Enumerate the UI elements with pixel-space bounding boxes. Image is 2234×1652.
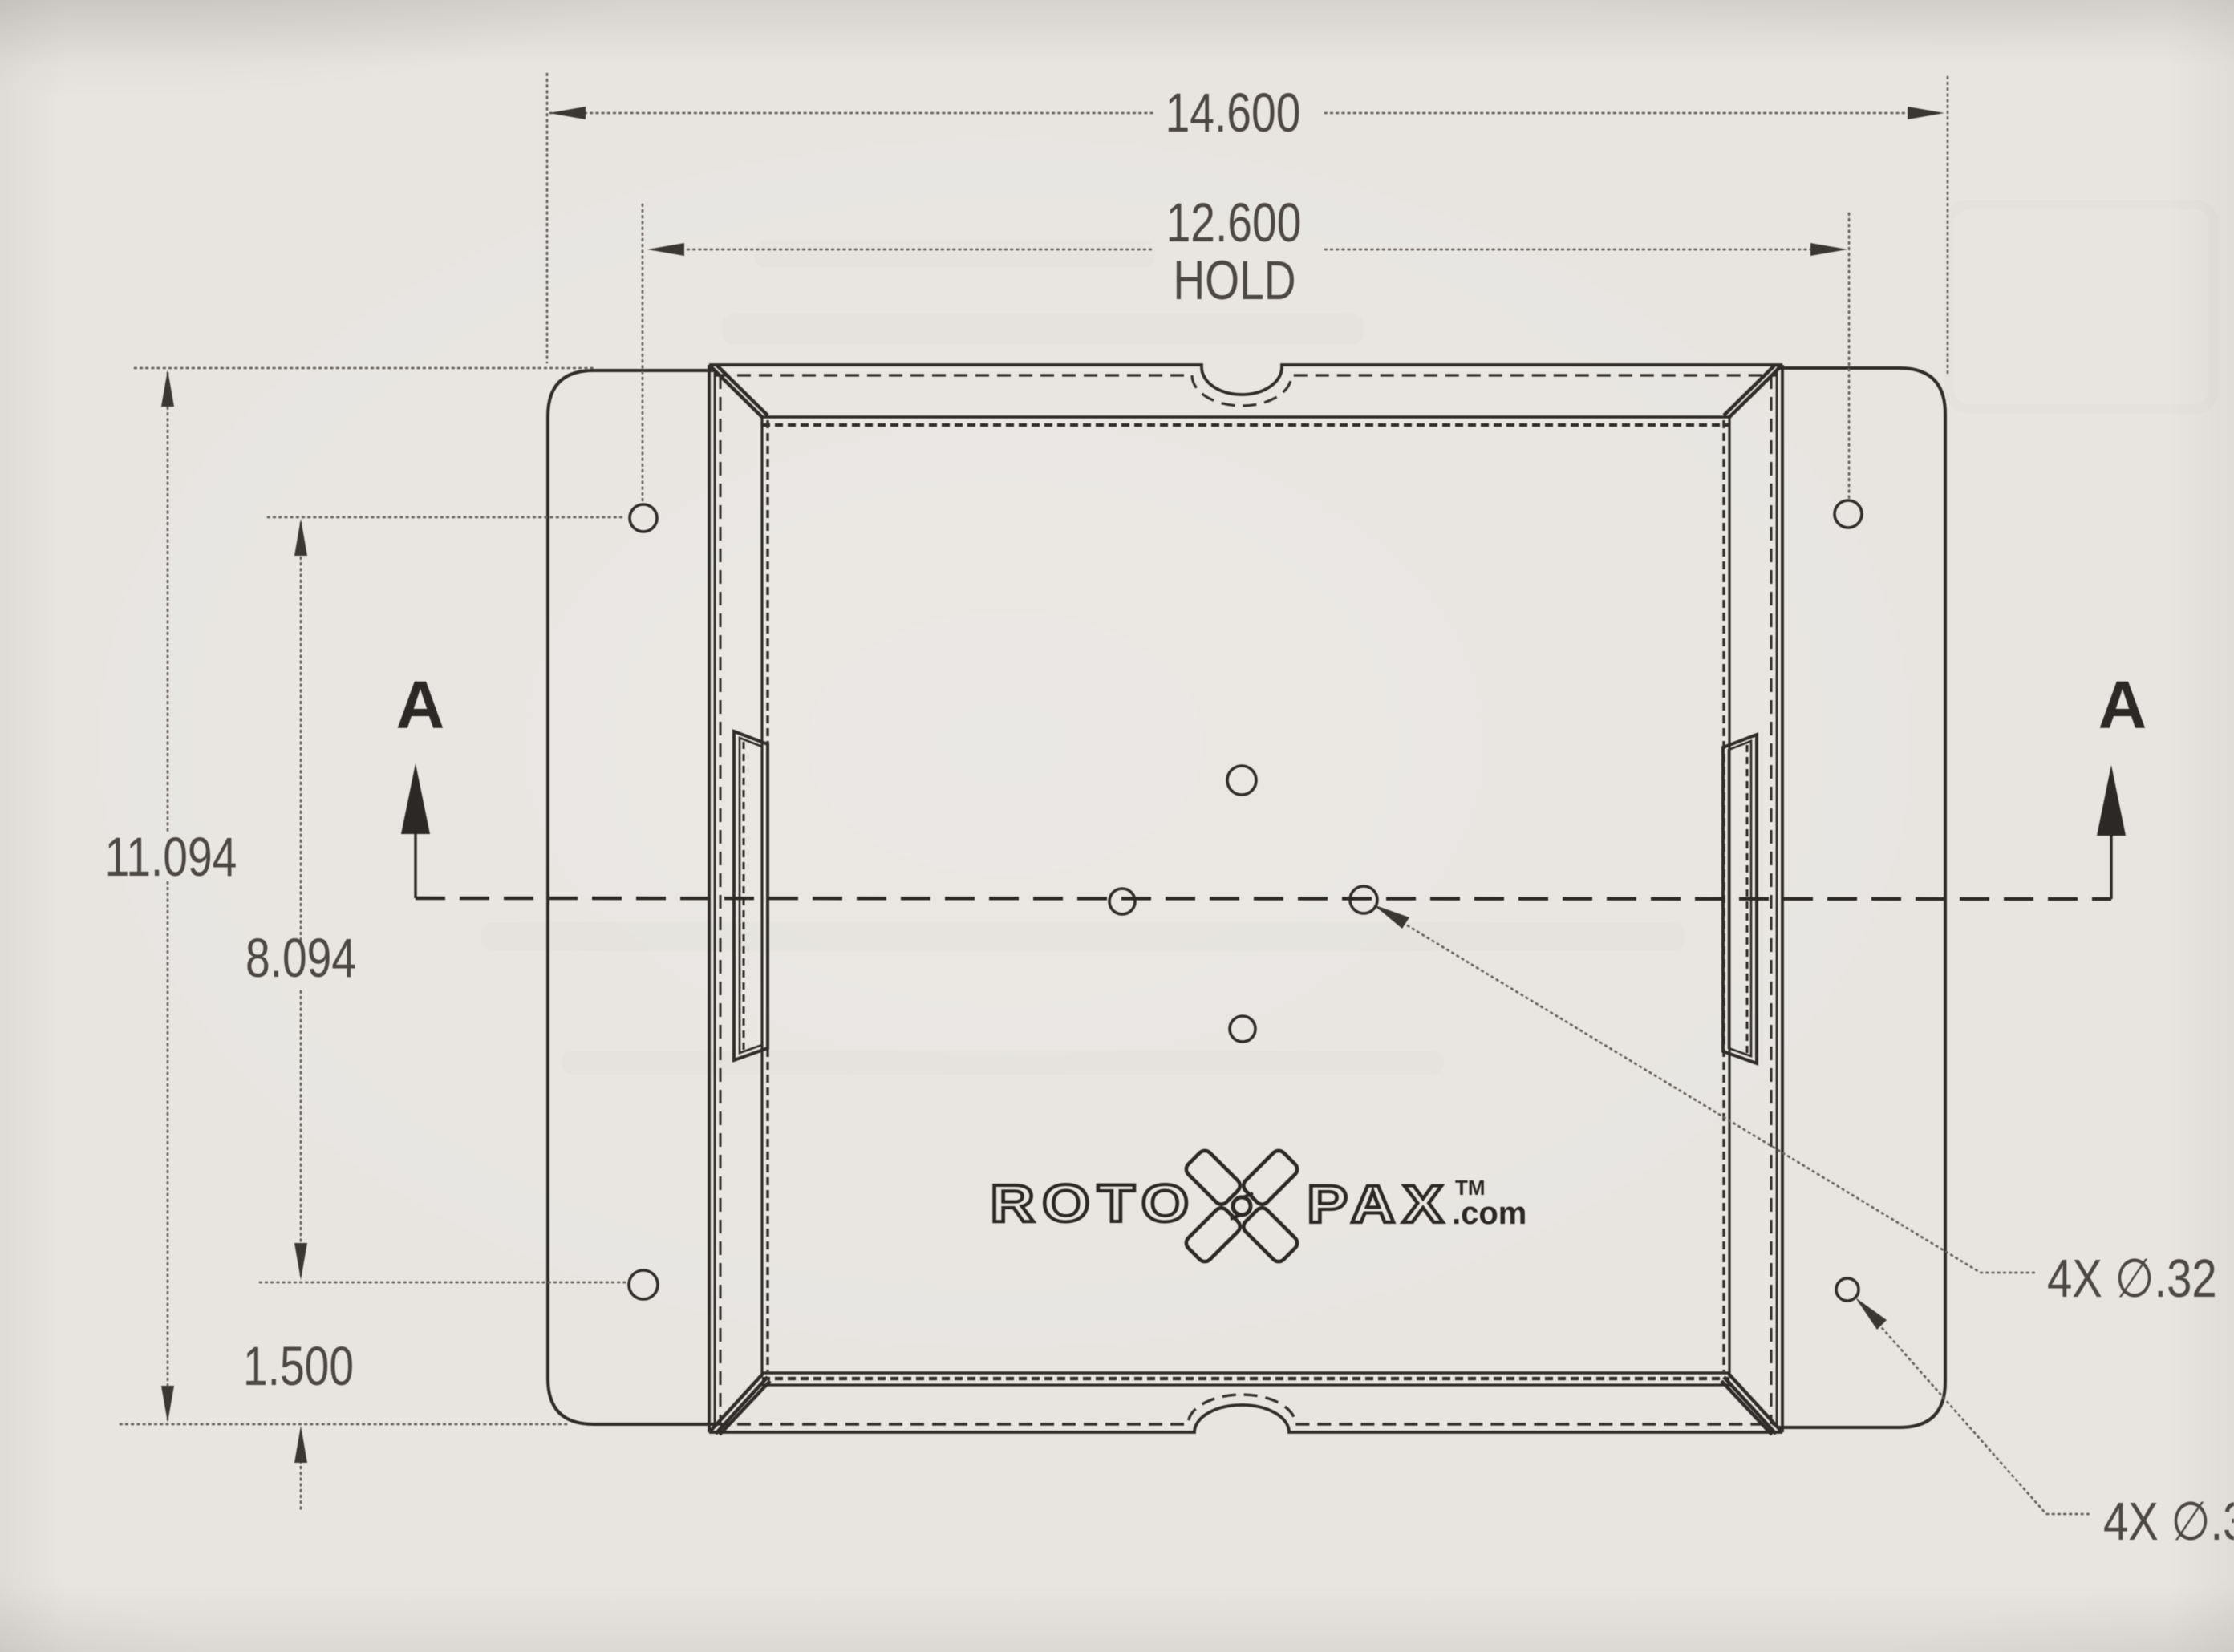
svg-text:14.600: 14.600	[1166, 82, 1301, 144]
svg-text:8.094: 8.094	[245, 927, 356, 989]
svg-text:12.600: 12.600	[1166, 192, 1302, 253]
svg-text:11.094: 11.094	[105, 826, 237, 888]
svg-text:HOLD: HOLD	[1173, 249, 1295, 311]
svg-text:ROTO: ROTO	[991, 1174, 1197, 1233]
svg-text:1.500: 1.500	[243, 1335, 354, 1397]
svg-text:A: A	[2098, 667, 2147, 743]
svg-text:4X ∅.3: 4X ∅.3	[2103, 1492, 2234, 1552]
svg-text:.com: .com	[1452, 1196, 1526, 1231]
svg-text:4X ∅.32: 4X ∅.32	[2047, 1249, 2217, 1309]
svg-text:A: A	[396, 667, 445, 743]
svg-text:PAX: PAX	[1307, 1175, 1451, 1234]
